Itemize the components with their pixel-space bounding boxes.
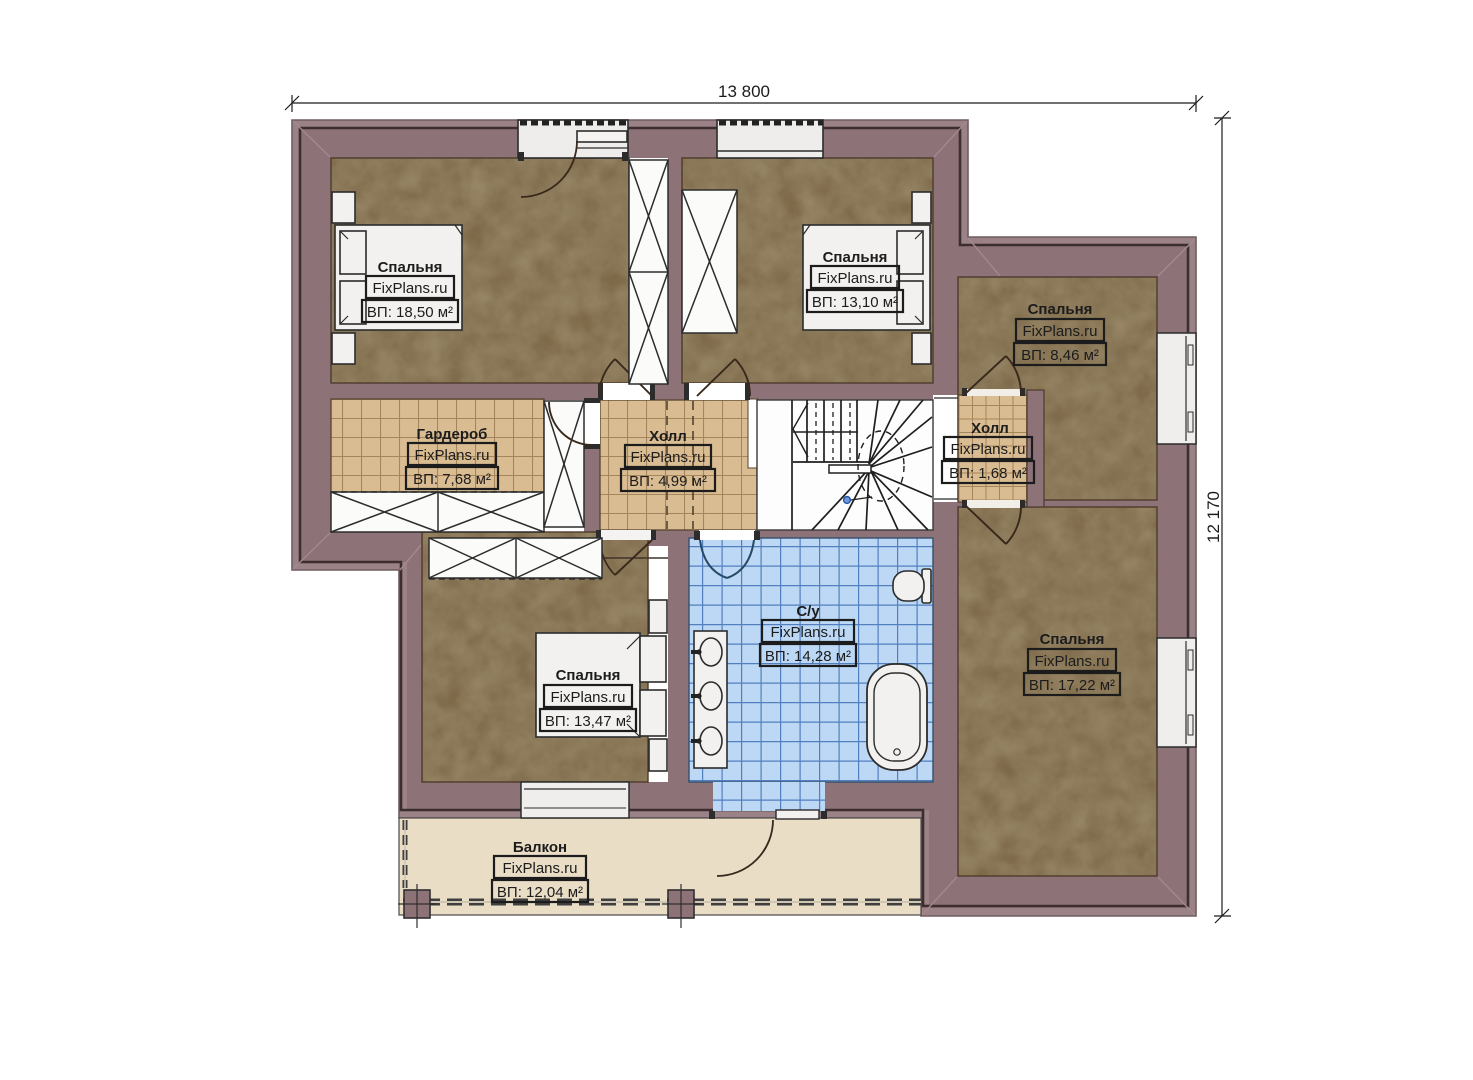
svg-text:FixPlans.ru: FixPlans.ru — [502, 860, 577, 877]
svg-text:Спальня: Спальня — [378, 259, 443, 276]
svg-text:FixPlans.ru: FixPlans.ru — [1034, 653, 1109, 670]
svg-text:Холл: Холл — [971, 420, 1009, 437]
svg-text:ВП: 13,10 м²: ВП: 13,10 м² — [812, 294, 898, 311]
svg-text:ВП: 7,68 м²: ВП: 7,68 м² — [413, 471, 491, 488]
svg-text:ВП: 8,46 м²: ВП: 8,46 м² — [1021, 347, 1099, 364]
svg-text:ВП: 13,47 м²: ВП: 13,47 м² — [545, 713, 631, 730]
svg-text:ВП: 17,22 м²: ВП: 17,22 м² — [1029, 677, 1115, 694]
svg-text:FixPlans.ru: FixPlans.ru — [630, 449, 705, 466]
svg-text:FixPlans.ru: FixPlans.ru — [414, 447, 489, 464]
svg-text:FixPlans.ru: FixPlans.ru — [817, 270, 892, 287]
svg-text:13 800: 13 800 — [718, 82, 770, 101]
svg-text:FixPlans.ru: FixPlans.ru — [372, 280, 447, 297]
svg-text:FixPlans.ru: FixPlans.ru — [950, 441, 1025, 458]
svg-text:Спальня: Спальня — [823, 249, 888, 266]
svg-text:Холл: Холл — [649, 428, 687, 445]
svg-text:Спальня: Спальня — [1040, 631, 1105, 648]
svg-text:Гардероб: Гардероб — [417, 426, 488, 443]
svg-text:FixPlans.ru: FixPlans.ru — [550, 689, 625, 706]
svg-text:FixPlans.ru: FixPlans.ru — [770, 624, 845, 641]
svg-text:FixPlans.ru: FixPlans.ru — [1022, 323, 1097, 340]
svg-text:ВП: 1,68 м²: ВП: 1,68 м² — [949, 465, 1027, 482]
svg-text:ВП: 14,28 м²: ВП: 14,28 м² — [765, 648, 851, 665]
svg-text:Спальня: Спальня — [556, 667, 621, 684]
svg-text:Балкон: Балкон — [513, 839, 567, 856]
svg-text:ВП: 18,50 м²: ВП: 18,50 м² — [367, 304, 453, 321]
svg-text:С/у: С/у — [796, 603, 820, 620]
svg-text:ВП: 4,99 м²: ВП: 4,99 м² — [629, 473, 707, 490]
svg-text:ВП: 12,04 м²: ВП: 12,04 м² — [497, 884, 583, 901]
svg-text:Спальня: Спальня — [1028, 301, 1093, 318]
svg-text:12 170: 12 170 — [1204, 491, 1223, 543]
